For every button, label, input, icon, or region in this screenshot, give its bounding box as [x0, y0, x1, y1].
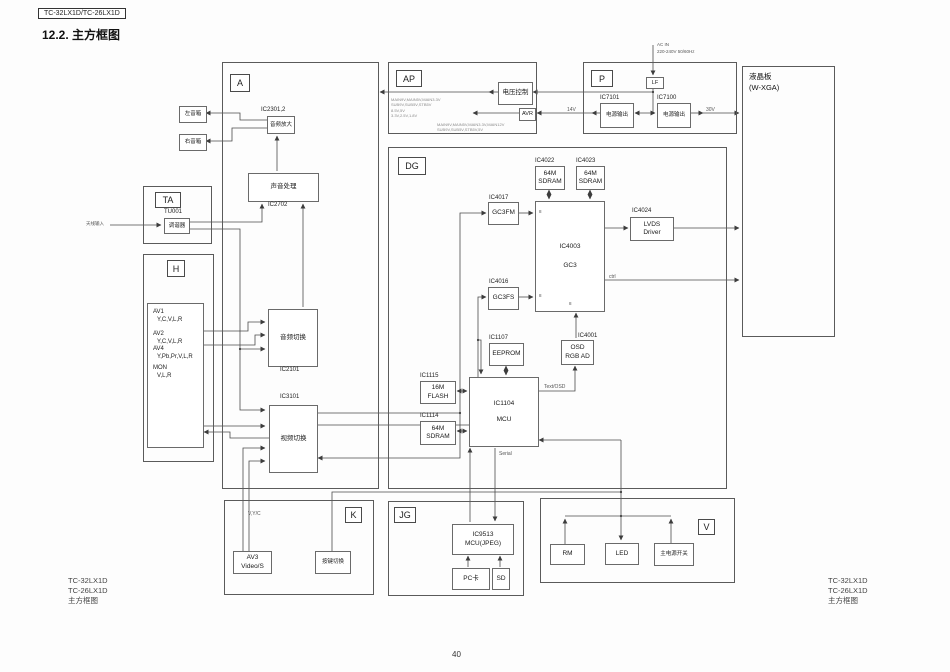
ref-ic4023: IC4023: [576, 158, 595, 164]
block-audio-switch: 音频切换: [268, 309, 318, 367]
bus-width-8b: 8: [539, 293, 542, 298]
bus-width-8c: 8: [569, 301, 572, 306]
block-sdram-4022: 64MSDRAM: [535, 166, 565, 190]
section-v-box: [540, 498, 735, 583]
ref-ic2101: IC2101: [280, 367, 299, 373]
corner-text-right: TC-32LX1DTC-26LX1D主方框图: [828, 576, 868, 606]
lcd-panel-box: [742, 66, 835, 337]
block-gc3: IC4003GC3: [535, 201, 605, 312]
wire-label-30v: 30V: [706, 107, 715, 113]
wire-label-text-osd: Text/OSD: [544, 384, 565, 390]
wire-label-ctrl: ctrl: [609, 274, 616, 280]
bus-width-8a: 8: [539, 209, 542, 214]
ref-ic4001: IC4001: [578, 333, 597, 339]
section-ta-label: TA: [155, 192, 181, 208]
ref-ic7101: IC7101: [600, 95, 619, 101]
block-av3: AV3Video/S: [233, 551, 272, 574]
block-rm: RM: [550, 544, 585, 565]
ref-ic4017: IC4017: [489, 195, 508, 201]
ref-ic2301: IC2301,2: [261, 107, 285, 113]
block-lf: LF: [646, 77, 664, 89]
block-speaker-right: 右音箱: [179, 134, 207, 151]
wire-label-serial: Serial: [499, 451, 512, 457]
page: TC-32LX1D/TC-26LX1D 12.2. 主方框图: [0, 0, 950, 672]
section-ap-label: AP: [396, 70, 422, 87]
block-lvds-driver: LVDSDriver: [630, 217, 674, 241]
block-pc-card: PC卡: [452, 568, 490, 590]
ref-ic4024: IC4024: [632, 208, 651, 214]
block-avr: AVR: [519, 108, 536, 121]
page-number: 40: [452, 650, 461, 659]
section-k-label: K: [345, 507, 362, 523]
block-power-out-1: 电源输出: [600, 103, 634, 128]
block-audio-amp: 音频放大: [267, 116, 295, 134]
block-power-out-2: 电源输出: [657, 103, 691, 128]
section-dg-label: DG: [398, 157, 426, 175]
block-tuner: 调谐器: [164, 218, 190, 234]
section-jg-label: JG: [394, 507, 416, 523]
wire-label-ac-in: AC IN: [657, 42, 669, 47]
wire-label-antenna: 天线输入: [86, 221, 104, 227]
block-av-inputs: [147, 303, 204, 448]
block-flash: 16MFLASH: [420, 381, 456, 404]
ref-ic1114: IC1114: [420, 413, 438, 419]
corner-text-left: TC-32LX1DTC-26LX1D主方框图: [68, 576, 108, 606]
block-gc3fs: GC3FS: [488, 287, 519, 310]
section-h-label: H: [167, 260, 185, 277]
section-v-label: V: [698, 519, 715, 535]
section-p-label: P: [591, 70, 613, 87]
ref-tu001: TU001: [164, 209, 182, 215]
ref-ic4022: IC4022: [535, 158, 554, 164]
wire-label-14v: 14V: [567, 107, 576, 113]
block-speaker-left: 左音箱: [179, 106, 207, 123]
block-sd-card: SD: [492, 568, 510, 590]
ref-ic1107: IC1107: [489, 335, 508, 341]
section-a-label: A: [230, 74, 250, 92]
block-video-switch: 视频切换: [269, 405, 318, 473]
ref-ic7100: IC7100: [657, 95, 676, 101]
ap-rails-1: MAIN9V,MAIN5V,MAIN3.3VSUB9V,SUB5V,STB5V …: [391, 97, 441, 119]
block-sound-proc: 声音处理: [248, 173, 319, 202]
ref-ic2702: IC2702: [268, 202, 287, 208]
block-gc3fm: GC3FM: [488, 202, 519, 225]
block-eeprom: EEPROM: [489, 343, 524, 366]
block-key-switch: 按键切换: [315, 551, 351, 574]
wire-label-ac-rating: 220-240V 50/60Hz: [657, 49, 695, 54]
block-main-switch: 主电源开关: [654, 543, 694, 566]
block-voltage-control: 电压控制: [498, 82, 533, 105]
ref-ic1115: IC1115: [420, 373, 438, 379]
block-mcu: IC1104MCU: [469, 377, 539, 447]
block-sdram-1114: 64MSDRAM: [420, 421, 456, 445]
wire-label-v-yc: V,Y/C: [248, 511, 261, 517]
ap-rails-2: MAIN9V,MAIN5V,MAIN3.3V,MAIN12VSUB9V,SUB5…: [437, 122, 504, 133]
block-led: LED: [605, 543, 639, 565]
lcd-panel-title: 液晶板(W-XGA): [749, 72, 779, 93]
block-osd-rgb-ad: OSDRGB AD: [561, 340, 594, 365]
block-sdram-4023: 64MSDRAM: [576, 166, 605, 190]
ref-ic4016: IC4016: [489, 279, 508, 285]
block-jpeg-mcu: IC9513MCU(JPEG): [452, 524, 514, 555]
ref-ic3101: IC3101: [280, 394, 299, 400]
